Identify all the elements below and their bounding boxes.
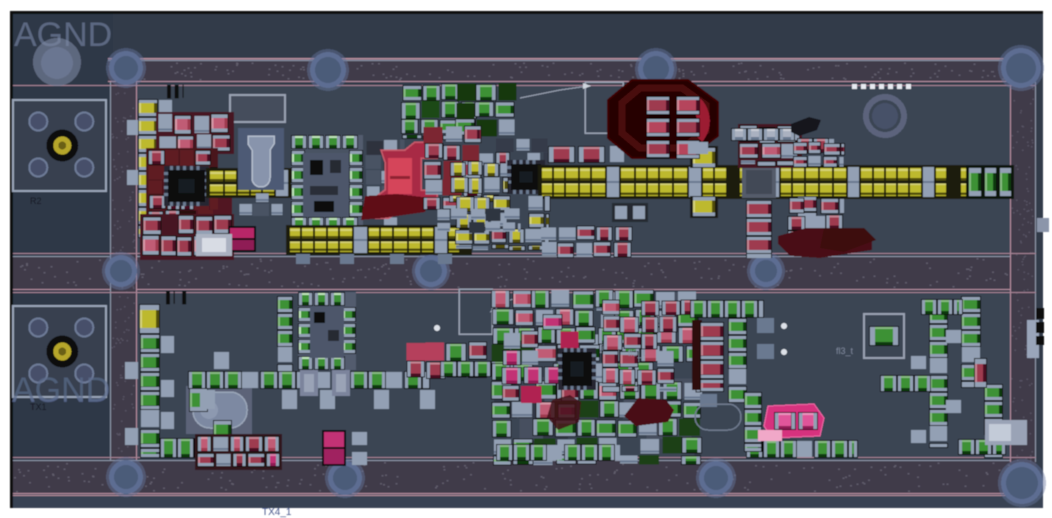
svg-text:AGND: AGND	[12, 371, 110, 409]
svg-text:R2: R2	[30, 196, 42, 206]
svg-text:fl3_t: fl3_t	[628, 348, 646, 358]
svg-text:▌▌▏: ▌▌▏	[167, 84, 191, 99]
svg-text:▌▏▌: ▌▏▌	[166, 290, 190, 305]
svg-text:TX4_1: TX4_1	[262, 507, 292, 518]
svg-text:fl3_t: fl3_t	[836, 346, 854, 356]
